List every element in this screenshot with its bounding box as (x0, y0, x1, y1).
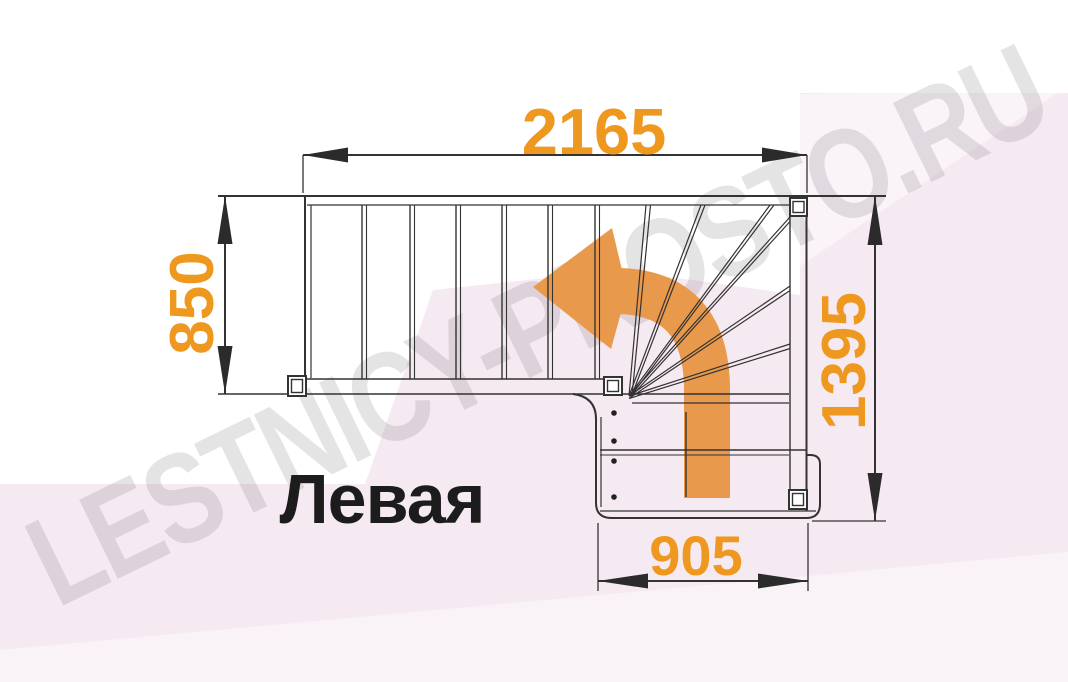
dimension-label-bottom: 905 (621, 528, 771, 584)
newel-post-bottom-right (789, 490, 807, 509)
newel-post-center (604, 377, 622, 395)
right-stringer (790, 197, 807, 511)
dimension-label-left: 850 (162, 233, 224, 373)
newel-post-top-left (288, 376, 306, 396)
dimension-label-right: 1395 (814, 281, 876, 441)
dimension-label-top: 2165 (519, 99, 669, 164)
newel-post-top-right (790, 198, 807, 216)
plan-title: Левая (262, 464, 502, 534)
